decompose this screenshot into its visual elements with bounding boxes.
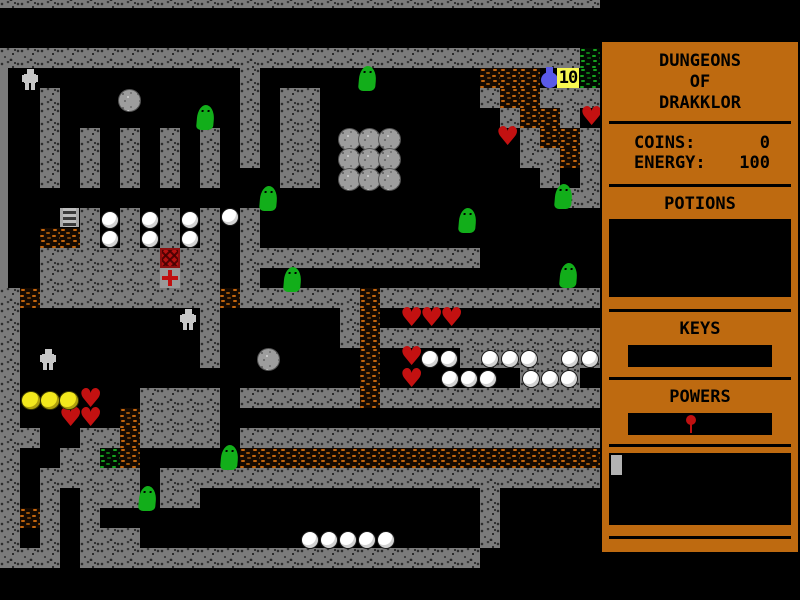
tile-wall	[40, 128, 60, 148]
tile-wall	[280, 0, 300, 8]
tile-wall	[280, 148, 300, 168]
tile-wall	[400, 468, 420, 488]
tile-wall	[440, 468, 460, 488]
tile-wall	[220, 548, 240, 568]
tile-wall	[360, 428, 380, 448]
sprite-pearl	[479, 370, 497, 388]
power-pin-icon	[686, 415, 696, 433]
tile-wall	[120, 528, 140, 548]
tile-wall	[0, 48, 20, 68]
tile-wall	[160, 148, 180, 168]
tile-wall	[520, 48, 540, 68]
coins-row: COINS: 0	[602, 133, 798, 153]
tile-wall	[300, 48, 320, 68]
tile-dirt	[240, 448, 260, 468]
sprite-pearl	[522, 370, 540, 388]
tile-wall	[400, 48, 420, 68]
tile-wall	[200, 128, 220, 148]
tile-wall	[580, 288, 600, 308]
tile-wall	[140, 548, 160, 568]
tile-wall	[240, 248, 260, 268]
tile-wall	[200, 468, 220, 488]
tile-wall	[160, 428, 180, 448]
tile-wall-edge	[0, 108, 20, 128]
tile-wall	[40, 548, 60, 568]
tile-wall	[200, 48, 220, 68]
tile-wall	[300, 248, 320, 268]
tile-wall-edge	[0, 248, 20, 268]
tile-wall	[340, 328, 360, 348]
tile-wall	[500, 48, 520, 68]
sprite-pearl	[520, 350, 538, 368]
tile-wall	[420, 428, 440, 448]
tile-wall	[100, 468, 120, 488]
tile-wall	[140, 48, 160, 68]
game-title-line1: DUNGEONS	[602, 51, 798, 72]
tile-wall	[380, 248, 400, 268]
powers-header: POWERS	[602, 388, 798, 406]
tile-wall	[440, 0, 460, 8]
sprite-pearl	[561, 350, 579, 368]
tile-wall	[540, 428, 560, 448]
sprite-heart: ♥	[59, 409, 81, 429]
tile-dirt	[520, 88, 540, 108]
sprite-golem	[22, 69, 38, 90]
tile-wall-edge	[0, 208, 20, 228]
tile-wall	[220, 0, 240, 8]
tile-wall	[180, 268, 200, 288]
tile-wall	[480, 88, 500, 108]
sprite-slime	[554, 184, 573, 209]
tile-wall	[80, 208, 100, 228]
coins-label: COINS:	[634, 133, 695, 153]
tile-wall	[380, 328, 400, 348]
tile-wall	[300, 0, 320, 8]
divider	[609, 184, 791, 187]
tile-wall	[360, 468, 380, 488]
stats-panel: COINS: 0 ENERGY: 100	[602, 133, 798, 173]
tile-wall	[160, 208, 180, 228]
sprite-slime	[138, 486, 157, 511]
tile-wall	[240, 468, 260, 488]
tile-wall	[200, 268, 220, 288]
tile-wall	[60, 288, 80, 308]
tile-wall	[60, 448, 80, 468]
sprite-pearl	[181, 211, 199, 229]
tile-wall	[280, 548, 300, 568]
tile-wall	[460, 468, 480, 488]
tile-wall	[80, 468, 100, 488]
tile-wall	[480, 528, 500, 548]
tile-wall	[80, 168, 100, 188]
tile-dirt	[220, 288, 240, 308]
tile-wall	[40, 248, 60, 268]
tile-dirt	[120, 428, 140, 448]
tile-wall	[80, 488, 100, 508]
tile-wall	[540, 168, 560, 188]
sprite-golem	[40, 349, 56, 370]
tile-wall	[340, 428, 360, 448]
tile-wall	[160, 388, 180, 408]
divider	[609, 309, 791, 312]
tile-wall	[380, 0, 400, 8]
tile-wall	[500, 0, 520, 8]
tile-wall	[300, 148, 320, 168]
tile-wall	[340, 248, 360, 268]
tile-wall	[120, 228, 140, 248]
tile-wall	[380, 468, 400, 488]
tile-wall-edge	[0, 228, 20, 248]
tile-wall	[40, 0, 60, 8]
tile-wall	[80, 128, 100, 148]
sprite-pearl	[141, 211, 159, 229]
sprite-heart: ♥	[580, 108, 600, 128]
sprite-pearl	[221, 208, 239, 226]
tile-dirt	[460, 448, 480, 468]
tile-wall	[340, 0, 360, 8]
tile-wall	[380, 388, 400, 408]
tile-wall	[340, 468, 360, 488]
powers-inventory-box	[628, 413, 772, 435]
tile-wall	[300, 428, 320, 448]
tile-wall	[40, 108, 60, 128]
tile-wall	[560, 328, 580, 348]
tile-wall	[80, 508, 100, 528]
tile-wall	[320, 388, 340, 408]
sprite-slime	[283, 267, 302, 292]
tile-wall	[180, 428, 200, 448]
tile-dirt	[260, 448, 280, 468]
tile-wall	[0, 308, 20, 328]
tile-wall	[0, 388, 20, 408]
game-screen: ♥♥♥♥♥♥♥♥♥♥10 DUNGEONS OF DRAKKLOR COINS:…	[0, 0, 800, 600]
sprite-slime	[458, 208, 477, 233]
tile-dirt	[520, 448, 540, 468]
tile-wall	[60, 268, 80, 288]
tile-wall	[160, 548, 180, 568]
sprite-pearl	[101, 230, 119, 248]
tile-wall	[380, 288, 400, 308]
tile-wall	[200, 328, 220, 348]
tile-dirt	[500, 68, 520, 88]
tile-wall	[560, 428, 580, 448]
tile-wall	[400, 548, 420, 568]
tile-wall	[520, 388, 540, 408]
tile-wall	[320, 248, 340, 268]
tile-wall	[260, 48, 280, 68]
tile-wall	[220, 48, 240, 68]
tile-wall	[360, 548, 380, 568]
tile-wall	[200, 428, 220, 448]
tile-wall	[200, 228, 220, 248]
game-viewport[interactable]: ♥♥♥♥♥♥♥♥♥♥10	[0, 0, 600, 600]
tile-wall	[280, 88, 300, 108]
tile-dirt	[480, 448, 500, 468]
tile-wall	[540, 148, 560, 168]
tile-wall	[20, 428, 40, 448]
tile-moss	[100, 448, 120, 468]
tile-wall	[120, 0, 140, 8]
tile-wall	[80, 0, 100, 8]
sprite-slime	[259, 186, 278, 211]
sprite-pearl	[358, 531, 376, 549]
sprite-pearl	[440, 350, 458, 368]
tile-dirt	[520, 108, 540, 128]
potions-header: POTIONS	[602, 195, 798, 213]
tile-dirt	[360, 348, 380, 368]
tile-wall	[500, 428, 520, 448]
tile-wall	[180, 248, 200, 268]
tile-wall	[0, 468, 20, 488]
tile-wall	[60, 48, 80, 68]
tile-wall-edge	[0, 148, 20, 168]
tile-dirt	[520, 68, 540, 88]
tile-wall	[540, 48, 560, 68]
sprite-heart: ♥	[420, 309, 442, 329]
tile-wall	[120, 128, 140, 148]
tile-wall	[320, 428, 340, 448]
tile-wall	[240, 108, 260, 128]
tile-wall	[200, 548, 220, 568]
tile-dirt	[360, 448, 380, 468]
tile-wall	[260, 0, 280, 8]
tile-wall	[280, 48, 300, 68]
tile-wall	[420, 0, 440, 8]
tile-wall	[0, 348, 20, 368]
tile-wall	[460, 428, 480, 448]
tile-wall	[80, 228, 100, 248]
potions-inventory-box	[609, 219, 791, 297]
tile-wall	[80, 248, 100, 268]
tile-wall	[540, 468, 560, 488]
tile-wall	[200, 248, 220, 268]
tile-wall	[540, 88, 560, 108]
tile-wall	[140, 388, 160, 408]
tile-wall	[580, 148, 600, 168]
tile-wall	[100, 428, 120, 448]
sprite-pearl	[101, 211, 119, 229]
tile-wall	[180, 288, 200, 308]
tile-dirt	[540, 128, 560, 148]
tile-wall	[420, 468, 440, 488]
tile-wall	[480, 48, 500, 68]
sprite-pearl	[560, 370, 578, 388]
tile-wall	[40, 288, 60, 308]
tile-wall	[140, 408, 160, 428]
tile-dirt	[60, 228, 80, 248]
tile-wall	[100, 0, 120, 8]
tile-wall	[540, 348, 560, 368]
tile-wall	[80, 48, 100, 68]
energy-row: ENERGY: 100	[602, 153, 798, 173]
tile-wall	[540, 288, 560, 308]
tile-wall	[180, 488, 200, 508]
tile-dirt	[120, 408, 140, 428]
tile-wall	[40, 508, 60, 528]
tile-wall	[120, 48, 140, 68]
tile-wall	[520, 128, 540, 148]
tile-wall	[280, 428, 300, 448]
tile-wall	[160, 48, 180, 68]
tile-dirt	[320, 448, 340, 468]
tile-wall	[60, 248, 80, 268]
tile-wall	[0, 448, 20, 468]
tile-wall	[60, 468, 80, 488]
tile-wall	[480, 328, 500, 348]
tile-wall	[520, 148, 540, 168]
tile-dirt	[360, 328, 380, 348]
energy-label: ENERGY:	[634, 153, 706, 173]
tile-dirt	[560, 148, 580, 168]
tile-wall	[260, 428, 280, 448]
tile-wall	[40, 528, 60, 548]
sprite-pearl	[501, 350, 519, 368]
tile-dirt	[440, 448, 460, 468]
tile-wall	[580, 328, 600, 348]
tile-wall	[300, 388, 320, 408]
sprite-heart: ♥	[440, 309, 462, 329]
tile-wall	[160, 488, 180, 508]
sprite-boulder	[118, 89, 141, 112]
tile-wall	[100, 548, 120, 568]
divider	[609, 121, 791, 124]
tile-wall	[200, 168, 220, 188]
tile-wall	[180, 0, 200, 8]
tile-wall-edge	[0, 68, 20, 88]
tile-wall	[460, 388, 480, 408]
tile-wall	[100, 528, 120, 548]
tile-wall	[520, 428, 540, 448]
tile-wall	[40, 268, 60, 288]
tile-wall	[300, 168, 320, 188]
tile-wall	[40, 88, 60, 108]
tile-wall	[460, 248, 480, 268]
tile-wall	[540, 0, 560, 8]
tile-dirt	[40, 228, 60, 248]
tile-wall	[140, 288, 160, 308]
tile-wall	[20, 0, 40, 8]
tile-wall	[120, 248, 140, 268]
tile-dirt	[360, 368, 380, 388]
tile-wall	[380, 548, 400, 568]
tile-wall	[240, 288, 260, 308]
tile-dirt	[500, 448, 520, 468]
tile-dirt	[20, 288, 40, 308]
tile-wall	[0, 408, 20, 428]
tile-dirt	[420, 448, 440, 468]
sprite-pearl	[339, 531, 357, 549]
tile-wall	[560, 388, 580, 408]
tile-wall	[100, 288, 120, 308]
sprite-coin	[21, 391, 41, 410]
tile-wall	[140, 268, 160, 288]
tile-wall	[300, 88, 320, 108]
sprite-pearl	[441, 370, 459, 388]
sprite-pearl	[181, 230, 199, 248]
tile-wall	[280, 168, 300, 188]
tile-wall	[320, 468, 340, 488]
tile-dirt	[400, 448, 420, 468]
tile-wall	[180, 548, 200, 568]
tile-wall	[160, 128, 180, 148]
keys-header: KEYS	[602, 320, 798, 338]
tile-wall	[40, 168, 60, 188]
tile-wall	[340, 308, 360, 328]
sprite-pearl	[377, 531, 395, 549]
tile-wall	[100, 48, 120, 68]
sprite-coin	[40, 391, 60, 410]
keys-inventory-box	[628, 345, 772, 367]
tile-wall	[320, 48, 340, 68]
tile-wall	[560, 0, 580, 8]
tile-moss	[580, 68, 600, 88]
tile-wall	[400, 428, 420, 448]
tile-wall	[120, 288, 140, 308]
tile-wall	[440, 388, 460, 408]
tile-cross-arrows	[160, 268, 180, 288]
message-box	[609, 453, 791, 525]
tile-wall	[120, 168, 140, 188]
tile-dirt	[500, 88, 520, 108]
tile-wall	[480, 288, 500, 308]
tile-wall	[160, 0, 180, 8]
tile-wall	[60, 0, 80, 8]
tile-wall	[560, 468, 580, 488]
tile-wall	[440, 428, 460, 448]
sprite-pearl	[460, 370, 478, 388]
sprite-slime	[559, 263, 578, 288]
tile-wall	[100, 268, 120, 288]
tile-wall	[440, 548, 460, 568]
tile-wall	[360, 48, 380, 68]
tile-wall	[120, 488, 140, 508]
tile-wall	[580, 468, 600, 488]
tile-wall	[500, 468, 520, 488]
tile-wall	[500, 328, 520, 348]
tile-wall	[580, 0, 600, 8]
tile-wall	[520, 328, 540, 348]
tile-wall-edge	[0, 128, 20, 148]
tile-dirt	[300, 448, 320, 468]
sprite-badge-count: 10	[557, 68, 579, 88]
help-text: PRESS H FOR HELP	[602, 551, 798, 571]
tile-wall	[0, 0, 20, 8]
hud-sidebar: DUNGEONS OF DRAKKLOR COINS: 0 ENERGY: 10…	[602, 42, 798, 552]
tile-wall	[100, 248, 120, 268]
tile-moss	[580, 48, 600, 68]
tile-wall	[580, 388, 600, 408]
tile-wall	[400, 0, 420, 8]
tile-wall	[480, 468, 500, 488]
tile-wall	[100, 488, 120, 508]
tile-wall	[0, 488, 20, 508]
tile-dirt	[360, 308, 380, 328]
tile-wall	[460, 48, 480, 68]
tile-wall	[460, 0, 480, 8]
tile-wall	[20, 48, 40, 68]
tile-wall	[180, 48, 200, 68]
tile-wall	[180, 468, 200, 488]
tile-wall	[420, 48, 440, 68]
tile-wall	[300, 288, 320, 308]
tile-wall	[420, 248, 440, 268]
tile-wall	[240, 428, 260, 448]
tile-wall	[200, 288, 220, 308]
tile-wall	[80, 548, 100, 568]
tile-wall	[0, 328, 20, 348]
tile-wall	[140, 248, 160, 268]
tile-wall	[480, 508, 500, 528]
